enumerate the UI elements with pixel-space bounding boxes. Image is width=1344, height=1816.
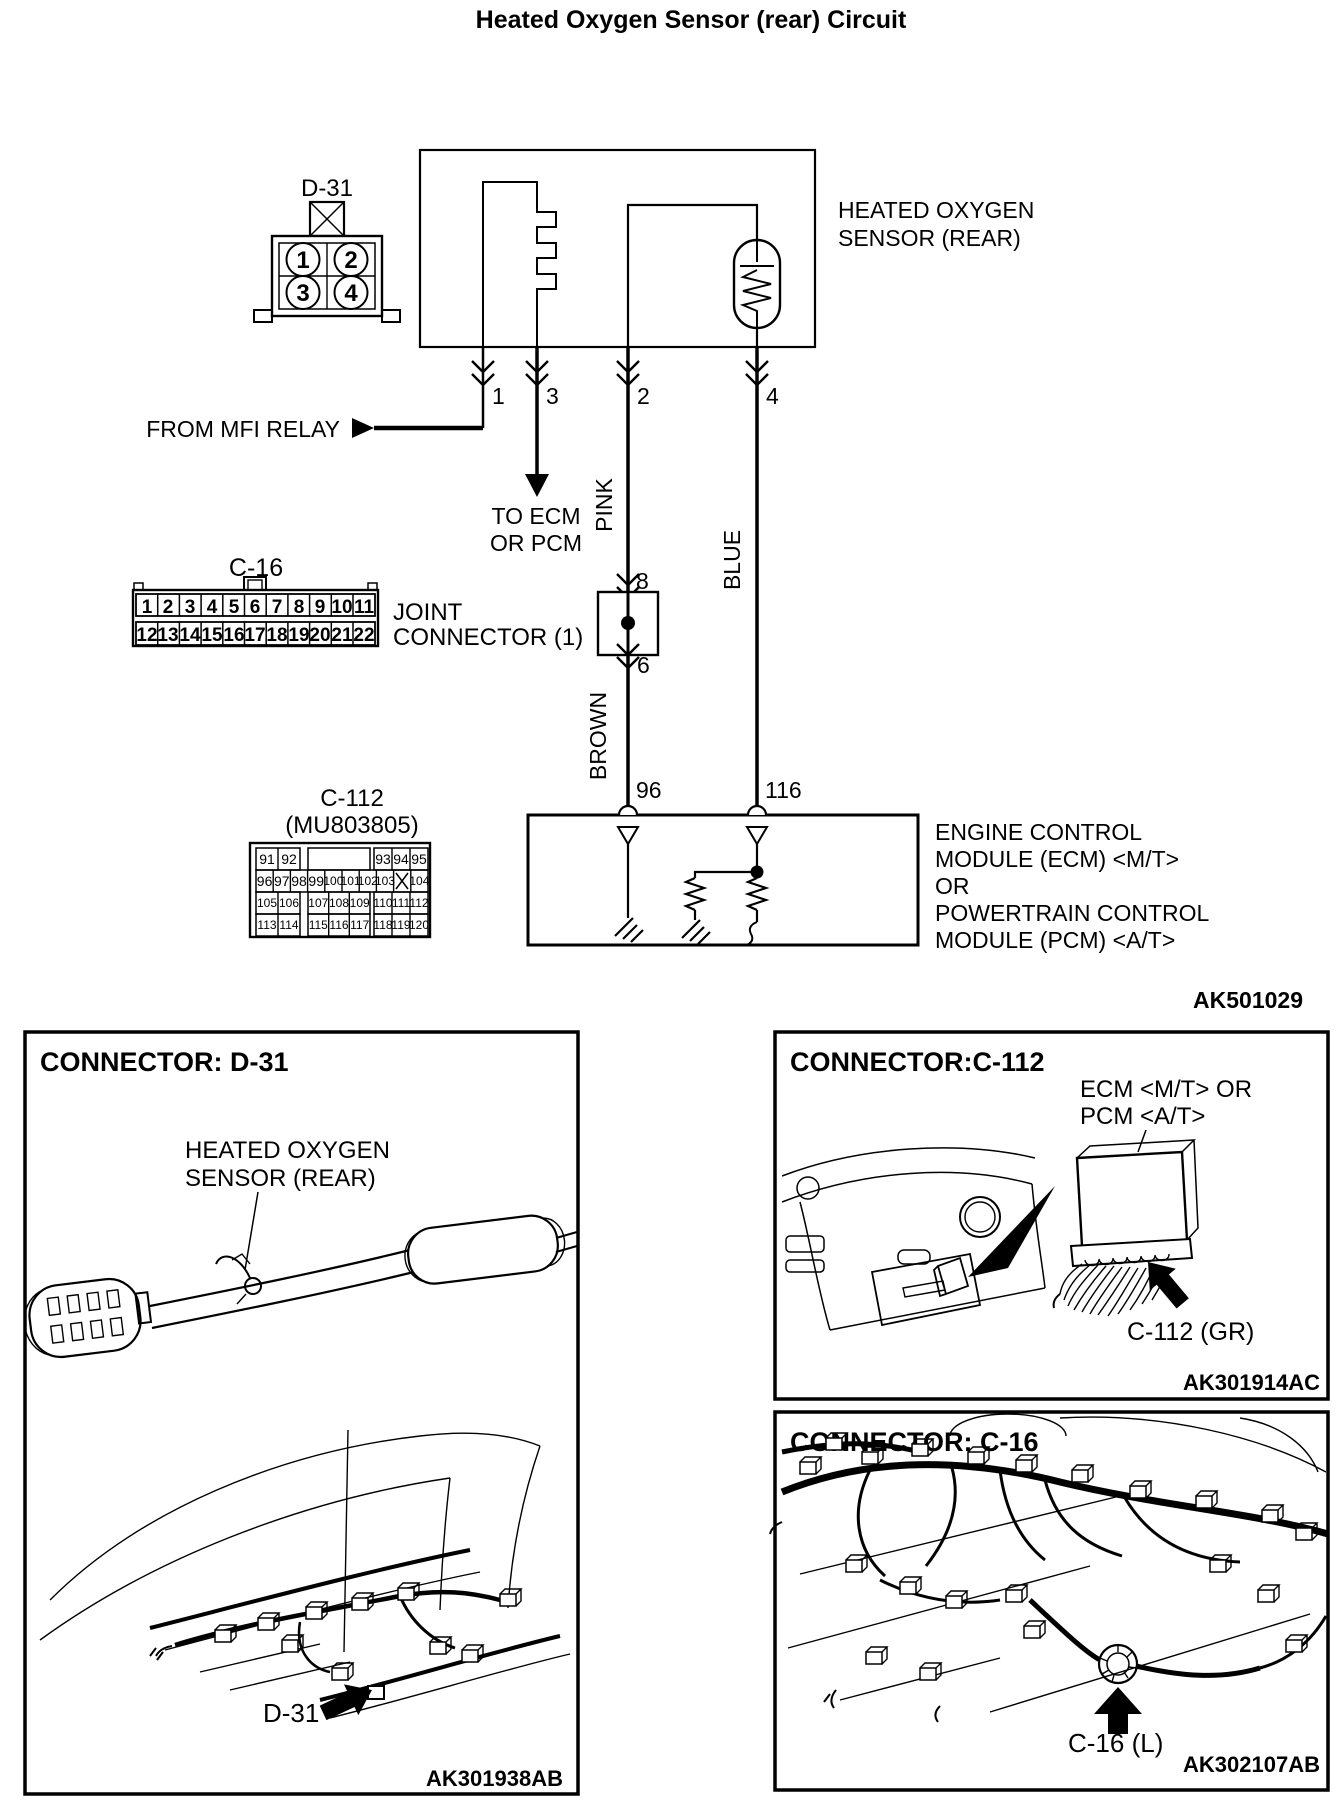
panel-c16-callout: C-16 (L) (1068, 1728, 1163, 1758)
to-ecm-line1: TO ECM (491, 503, 580, 529)
to-ecm-line2: OR PCM (490, 530, 582, 556)
c112-cell: 113 (257, 918, 276, 932)
c16-cell: 17 (244, 625, 265, 646)
pin-label-2: 2 (637, 383, 650, 409)
c112-cell: 107 (308, 896, 328, 910)
c16-cell: 13 (157, 625, 178, 646)
c112-cell: 112 (409, 896, 428, 910)
c112-cell: 92 (281, 851, 297, 867)
d31-pin-4: 4 (344, 280, 358, 307)
c112-cell: 115 (309, 918, 328, 932)
c112-cell: 103 (375, 874, 395, 888)
panel-d31-label2: SENSOR (REAR) (185, 1165, 376, 1192)
c16-cell: 12 (136, 625, 157, 646)
c16-cell: 15 (201, 625, 223, 646)
c112-cell: 109 (350, 896, 370, 910)
c112-cell: 97 (274, 873, 290, 889)
panel-c112-label1: ECM <M/T> OR (1080, 1076, 1252, 1103)
panel-d31-callout: D-31 (263, 1698, 319, 1728)
c112-cell: 120 (409, 918, 429, 932)
joint-pin-6: 6 (637, 652, 650, 678)
page-title: Heated Oxygen Sensor (rear) Circuit (476, 6, 907, 34)
c112-cell: 108 (329, 896, 349, 910)
svg-text:MODULE (PCM) <A/T>: MODULE (PCM) <A/T> (935, 927, 1175, 953)
d31-pin-1: 1 (296, 247, 309, 274)
c112-cell: 93 (375, 851, 391, 867)
c16-cell: 16 (223, 625, 244, 646)
c112-cell: 105 (257, 896, 277, 910)
panel-d31-label1: HEATED OXYGEN (185, 1137, 390, 1164)
joint-pin-8: 8 (636, 568, 649, 594)
ecm-pin-96: 96 (636, 777, 662, 803)
pin-label-1: 1 (492, 383, 505, 409)
c112-cell: 119 (391, 918, 410, 932)
c16-cell: 11 (354, 597, 375, 618)
panel-d31-header: CONNECTOR: D-31 (40, 1047, 289, 1077)
c16-cell: 5 (229, 597, 240, 618)
c16-cell: 2 (163, 597, 174, 618)
c16-cell: 22 (353, 625, 374, 646)
c16-cell: 7 (272, 597, 283, 618)
c112-cell: 96 (257, 873, 273, 889)
joint-connector-label-line2: CONNECTOR (1) (393, 624, 583, 651)
figure-code-c16: AK302107AB (1183, 1752, 1320, 1777)
d31-pin-3: 3 (296, 280, 309, 307)
c112-cell: 98 (291, 873, 307, 889)
d31-pin-2: 2 (344, 247, 357, 274)
c112-cell: 106 (279, 896, 299, 910)
wire-color-brown: BROWN (585, 692, 611, 780)
c112-cell: 91 (259, 851, 275, 867)
c112-cell: 117 (350, 918, 369, 932)
panel-c112-label2: PCM <A/T> (1080, 1103, 1205, 1130)
d31-label: D-31 (301, 175, 353, 202)
c112-label: C-112 (320, 785, 384, 812)
c112-cell: 99 (308, 873, 324, 889)
c16-cell: 14 (179, 625, 201, 646)
figure-code-d31: AK301938AB (426, 1766, 563, 1791)
panel-c112-callout: C-112 (GR) (1127, 1318, 1254, 1346)
manual-page: Heated Oxygen Sensor (rear) Circuit D-31… (0, 0, 1344, 1816)
c112-cell: 110 (373, 896, 392, 910)
c112-cell: 116 (329, 918, 348, 932)
wire-color-pink: PINK (591, 478, 617, 532)
c112-cell: 118 (373, 918, 392, 932)
c16-cell: 10 (331, 597, 352, 618)
panel-c112-header: CONNECTOR:C-112 (790, 1047, 1045, 1077)
svg-text:OR: OR (935, 873, 970, 899)
c112-cell: 111 (392, 896, 411, 910)
svg-text:ENGINE CONTROL: ENGINE CONTROL (935, 819, 1142, 845)
joint-connector-label-line1: JOINT (393, 599, 463, 626)
pin-label-3: 3 (546, 383, 559, 409)
c112-cell: 104 (409, 874, 429, 888)
c16-cell: 21 (331, 625, 353, 646)
svg-text:MODULE (ECM) <M/T>: MODULE (ECM) <M/T> (935, 846, 1179, 872)
wire-color-blue: BLUE (719, 530, 745, 590)
c112-part-no: (MU803805) (285, 812, 418, 839)
c16-cell: 3 (185, 597, 196, 618)
svg-text:POWERTRAIN CONTROL: POWERTRAIN CONTROL (935, 900, 1210, 926)
c112-cell: 95 (411, 851, 427, 867)
c16-cell: 4 (207, 597, 218, 618)
c16-cell: 1 (142, 597, 153, 618)
c112-cell: 94 (393, 851, 409, 867)
from-mfi-relay-label: FROM MFI RELAY (146, 416, 340, 442)
c16-cell: 8 (294, 597, 305, 618)
c112-cell: 114 (279, 918, 298, 932)
c16-cell: 19 (288, 625, 309, 646)
ecm-pin-116: 116 (765, 777, 802, 803)
sensor-label-line2: SENSOR (REAR) (838, 225, 1021, 251)
c16-cell: 18 (266, 625, 287, 646)
sensor-label-line1: HEATED OXYGEN (838, 197, 1034, 223)
wiring-diagram: Heated Oxygen Sensor (rear) Circuit D-31… (0, 0, 1344, 1816)
c16-cell: 6 (250, 597, 261, 618)
c16-cell: 9 (315, 597, 326, 618)
figure-code-c112: AK301914AC (1183, 1370, 1320, 1395)
figure-code-main: AK501029 (1193, 987, 1303, 1013)
pin-label-4: 4 (766, 383, 779, 409)
c16-cell: 20 (309, 625, 330, 646)
